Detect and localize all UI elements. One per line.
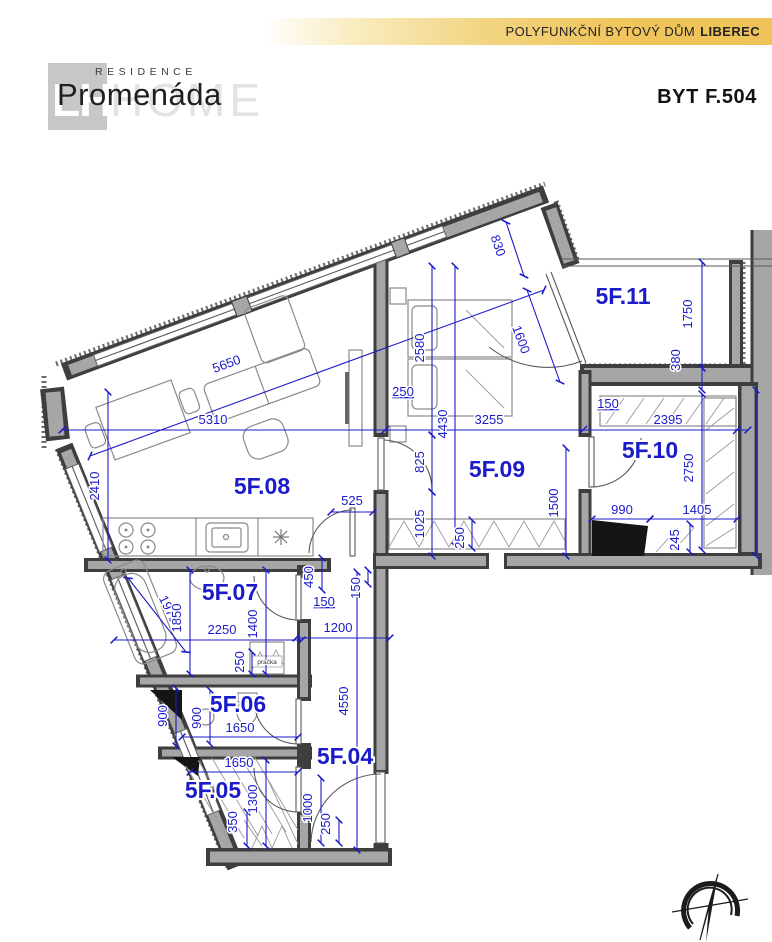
washing-machine xyxy=(250,642,284,674)
room-label-509: 5F.09 xyxy=(469,456,525,482)
dimension-label: 250 xyxy=(392,384,414,399)
dimension-label: 2410 xyxy=(87,472,102,501)
dimension-label: 1600 xyxy=(509,323,533,355)
dimension-label: 1300 xyxy=(245,785,260,814)
dimension-label: 900 xyxy=(189,707,204,729)
dimension-label: 1500 xyxy=(546,489,561,518)
dimension-label: 2750 xyxy=(681,454,696,483)
room-label-507: 5F.07 xyxy=(202,579,258,605)
dimension-label: 1400 xyxy=(245,610,260,639)
dimension-label: 1650 xyxy=(225,755,254,770)
room-label-510: 5F.10 xyxy=(622,437,678,463)
tv-board xyxy=(345,350,362,446)
dimension-label: 1750 xyxy=(680,300,695,329)
dimension-label: 1650 xyxy=(226,720,255,735)
room-label-508: 5F.08 xyxy=(234,473,290,499)
dimension-label: 1200 xyxy=(324,620,353,635)
dimension-label: 3255 xyxy=(475,412,504,427)
dimension-label: 525 xyxy=(341,493,363,508)
dimension-label: 825 xyxy=(412,451,427,473)
dimension-label: 990 xyxy=(611,502,633,517)
room-label-505: 5F.05 xyxy=(185,777,241,803)
room-label-504: 5F.04 xyxy=(317,743,373,769)
floorplan-page: { "header": { "banner_text": "POLYFUNKČN… xyxy=(0,0,772,942)
kitchen-counter xyxy=(103,518,313,556)
dimension-label: 150 xyxy=(348,577,363,599)
dimension-label: 350 xyxy=(225,811,240,833)
windows xyxy=(66,224,448,815)
dimension-label: 250 xyxy=(232,651,247,673)
room-label-506: 5F.06 xyxy=(210,691,266,717)
dimension-label: 150 xyxy=(313,594,335,609)
floor-plan: 5650 5310 2410 525 250 830 1600 2580 443… xyxy=(0,0,772,942)
appliance-label: pračka xyxy=(257,659,277,666)
dimension-label: 900 xyxy=(155,705,170,727)
dimension-label: 4550 xyxy=(336,687,351,716)
dimension-label: 5310 xyxy=(199,412,228,427)
dimension-label: 245 xyxy=(667,529,682,551)
dishwasher-icon xyxy=(273,529,289,545)
dimension-label: 380 xyxy=(668,349,683,371)
door-bathroom xyxy=(254,575,301,620)
dimension-label: 450 xyxy=(301,566,316,588)
north-compass-icon xyxy=(672,874,748,942)
dimension-label: 150 xyxy=(597,396,619,411)
dimension-label: 2250 xyxy=(208,622,237,637)
door-storage xyxy=(254,767,301,812)
room-label-511: 5F.11 xyxy=(596,283,651,309)
dimension-label: 250 xyxy=(452,527,467,549)
dimension-label: 1000 xyxy=(300,794,315,823)
dimension-label: 1850 xyxy=(169,604,184,633)
dimension-label: 1025 xyxy=(412,510,427,539)
dimension-label: 4430 xyxy=(435,410,450,439)
door-kitchen xyxy=(309,508,355,556)
dimension-label: 2395 xyxy=(654,412,683,427)
dimension-label: 2580 xyxy=(412,334,427,363)
dimension-label: 830 xyxy=(488,233,509,258)
dimension-label: 1405 xyxy=(683,502,712,517)
dimension-label: 250 xyxy=(318,813,333,835)
